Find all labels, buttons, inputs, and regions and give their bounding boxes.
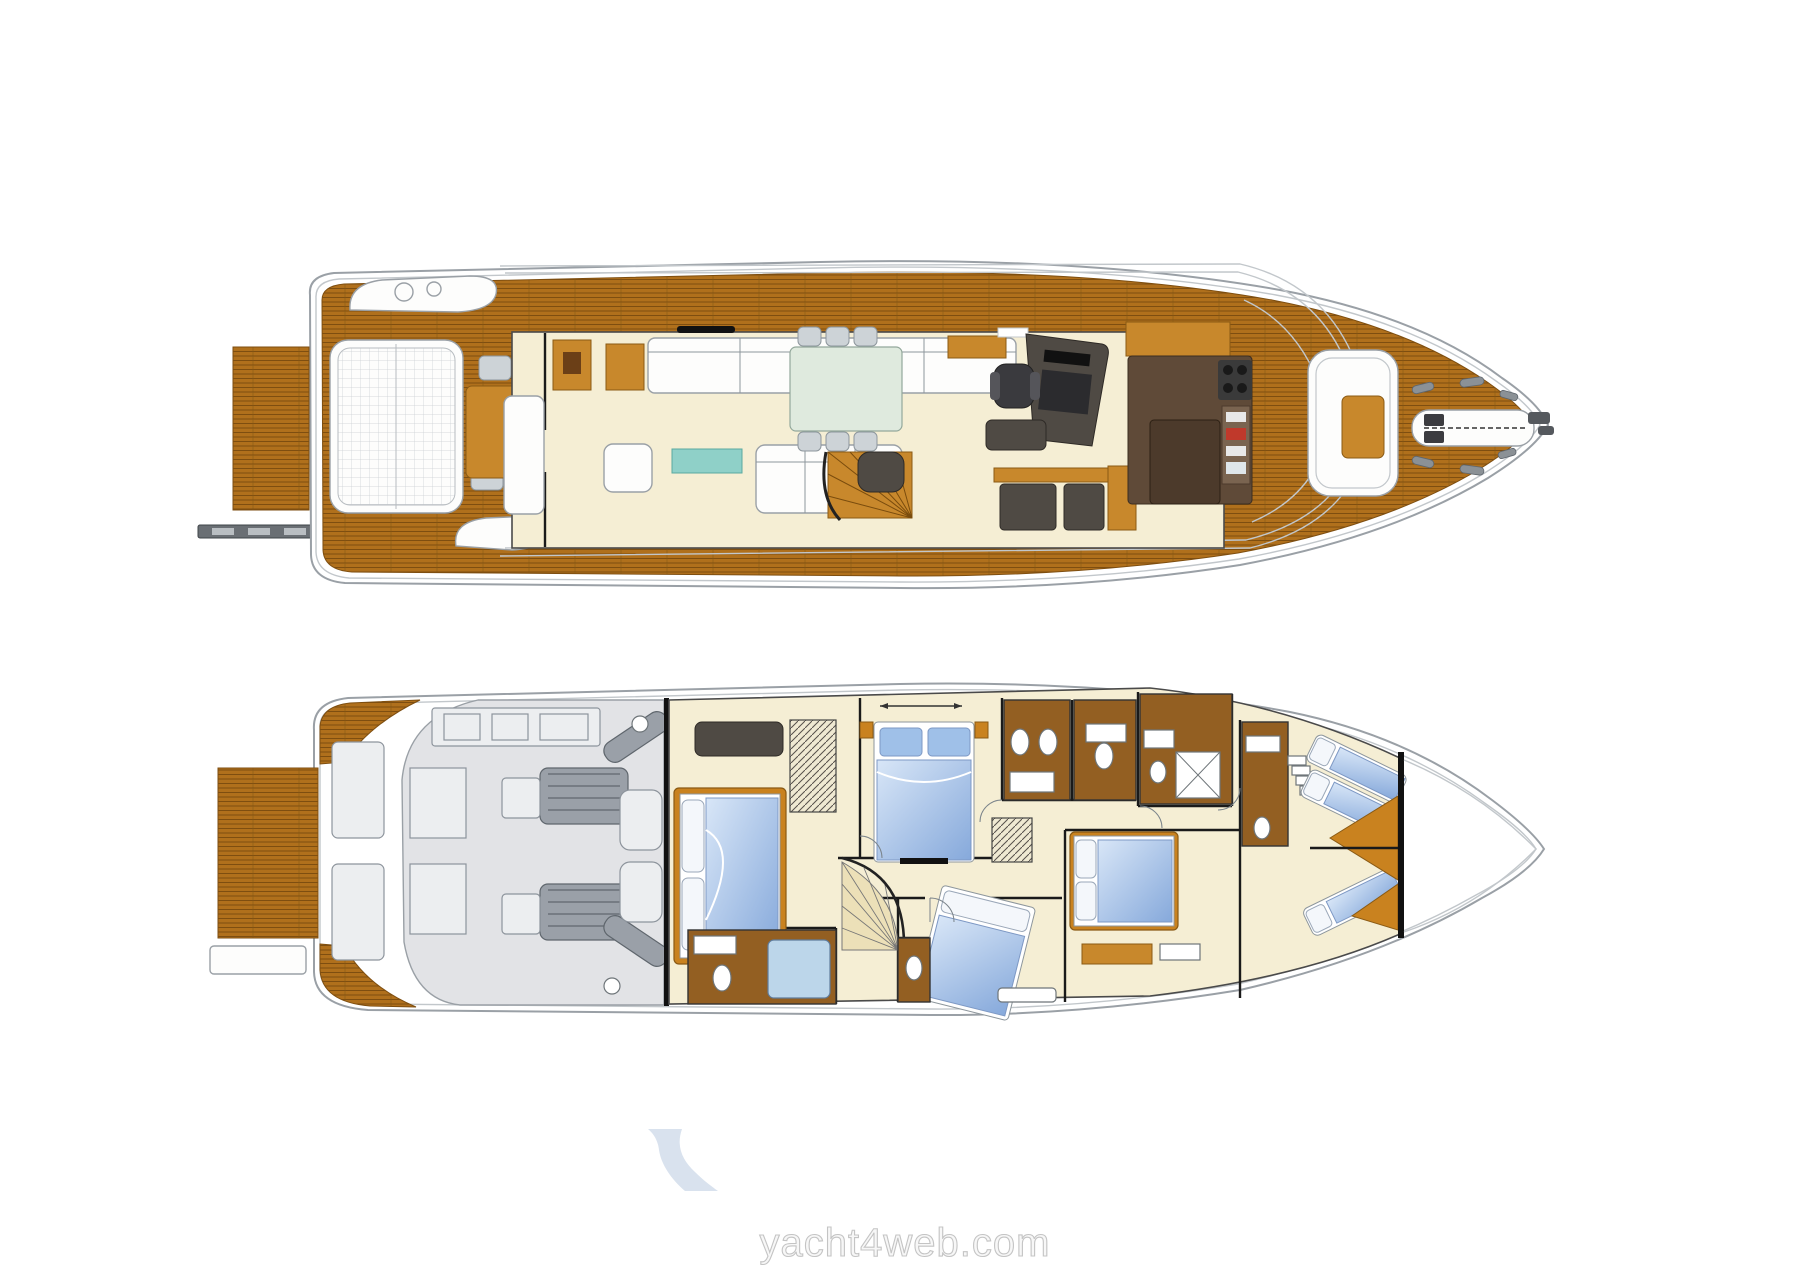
main-deck-plan xyxy=(198,261,1554,588)
engine-room xyxy=(402,700,672,1005)
lower-deck-plan xyxy=(210,684,1544,1021)
salon-armchair xyxy=(604,444,652,492)
master-tv xyxy=(900,858,948,864)
bow-table xyxy=(1342,396,1384,458)
master-nightstand xyxy=(975,722,988,738)
yacht4web-swoosh-icon xyxy=(648,1129,718,1191)
captain-chair xyxy=(990,364,1040,408)
sunroof-bar xyxy=(677,326,735,333)
branding: yacht4web.com xyxy=(648,1129,1050,1265)
aft-shower xyxy=(768,940,830,998)
aft-cabin-bathroom xyxy=(688,930,836,1004)
transom-locker xyxy=(332,864,384,960)
aft-cabin-wardrobe xyxy=(790,720,836,812)
forward-guest-dresser xyxy=(1082,944,1152,964)
transom-locker xyxy=(332,742,384,838)
salon-side-table xyxy=(606,344,644,390)
cockpit-bench xyxy=(504,396,544,514)
coffee-table xyxy=(672,449,742,473)
stair-landing xyxy=(858,452,904,492)
guest-toilet-corner xyxy=(898,938,930,1002)
dining-chair xyxy=(798,327,821,346)
dinette-seat xyxy=(1000,484,1056,530)
bow-settee xyxy=(1308,350,1398,496)
master-wardrobe xyxy=(992,818,1032,862)
porthole xyxy=(632,716,648,732)
dinette xyxy=(994,466,1136,530)
forward-guest-bed xyxy=(1070,832,1178,930)
transom-sunpad xyxy=(330,340,463,513)
dinette-seat xyxy=(1064,484,1104,530)
master-nightstand xyxy=(860,722,873,738)
forward-bulkhead xyxy=(1398,752,1404,938)
dining-chair xyxy=(854,327,877,346)
dining-chair xyxy=(826,327,849,346)
master-bed xyxy=(874,703,974,862)
floorplan-drawing: yacht4web.com xyxy=(0,0,1810,1280)
helm-settee xyxy=(986,420,1046,450)
dining-chair xyxy=(854,432,877,451)
day-tank xyxy=(620,790,662,850)
dining-table xyxy=(790,347,902,431)
cockpit-chair xyxy=(479,356,511,380)
yacht-floorplan-page: yacht4web.com xyxy=(0,0,1810,1280)
stowed-gangway xyxy=(210,946,306,974)
stairs-to-lower-deck xyxy=(824,452,912,520)
shower-stall xyxy=(1176,752,1220,798)
swim-platform xyxy=(233,347,309,510)
forward-bathroom xyxy=(1140,694,1232,804)
dining-sideboard xyxy=(948,336,1006,358)
watermark-text: yacht4web.com xyxy=(760,1221,1051,1265)
aft-cabin-sofa xyxy=(695,722,783,756)
galley-appliances xyxy=(1222,406,1250,484)
dining-chair xyxy=(798,432,821,451)
dining-chair xyxy=(826,432,849,451)
day-tank xyxy=(620,862,662,922)
cooktop xyxy=(1218,360,1252,400)
master-bathrooms xyxy=(1004,700,1136,800)
lower-swim-platform xyxy=(218,768,318,938)
porthole xyxy=(604,978,620,994)
